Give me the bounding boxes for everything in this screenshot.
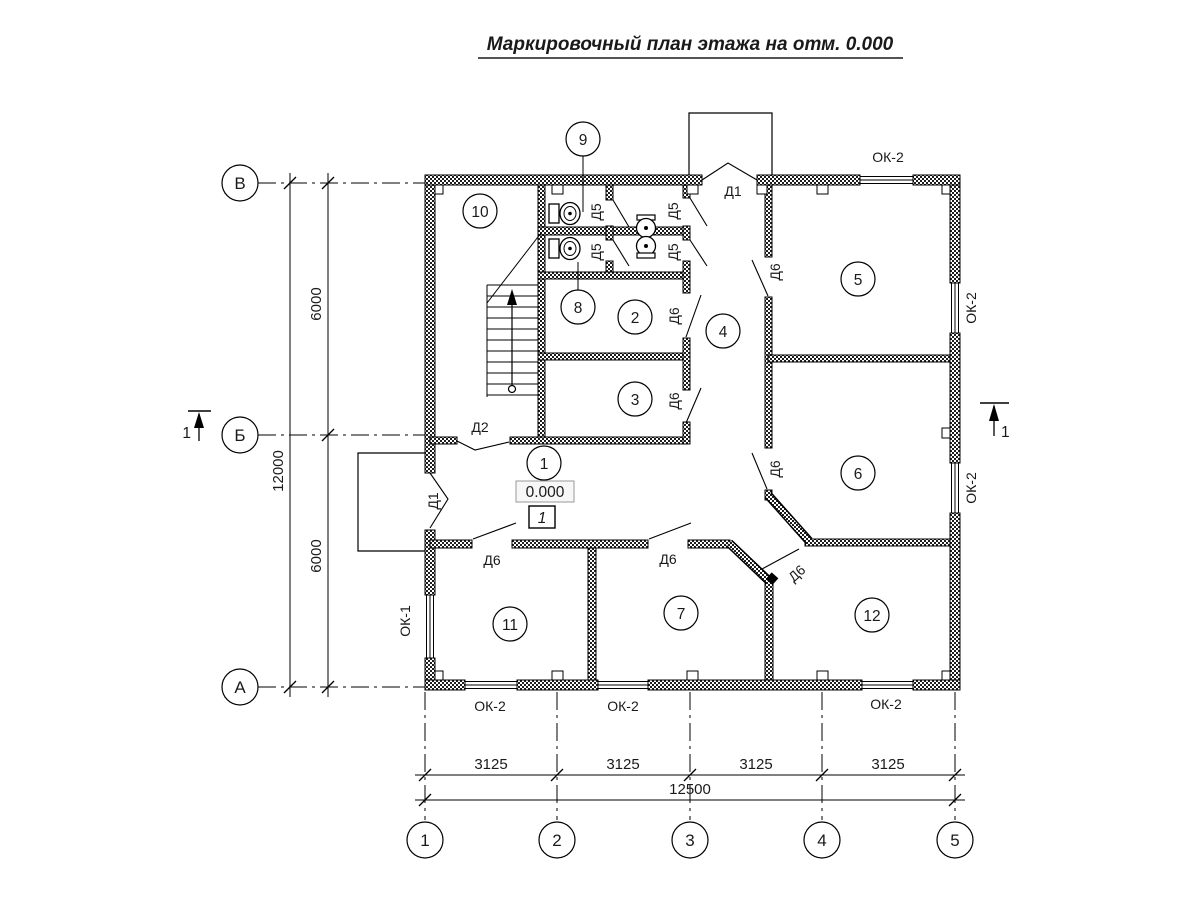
dim-row-total: 12000	[270, 450, 287, 492]
window-ok2-bottom-left	[465, 682, 517, 689]
elevation-mark: 0.000 1	[516, 481, 574, 528]
toilet-icon-lower	[549, 238, 580, 260]
stair-direction-arrow	[507, 289, 517, 393]
door-mark-d6-room7: Д6	[659, 551, 676, 567]
room-label-1: 1	[527, 446, 561, 480]
door-d5-vest-upper-leaf	[690, 198, 707, 226]
window-mark-ok2-bottom-left: ОК-2	[474, 698, 506, 714]
door-mark-d6-room3: Д6	[666, 392, 682, 409]
room-number-5: 5	[854, 272, 863, 289]
door-d5-vest-lower-leaf	[690, 240, 707, 266]
window-ok2-bottom-right	[862, 682, 913, 689]
room-number-8: 8	[574, 300, 583, 317]
col-axis-5: 5	[950, 831, 959, 850]
window-ok2-bottom-center	[598, 682, 648, 689]
left-porch-outline	[358, 453, 425, 551]
toilet-icon-upper	[549, 203, 580, 225]
door-d6-corridor-leaf	[752, 260, 768, 296]
door-mark-d6-room6: Д6	[767, 460, 783, 477]
window-mark-ok2-top: ОК-2	[872, 149, 904, 165]
room-label-11: 11	[493, 607, 527, 641]
door-d6-room7-leaf	[649, 523, 691, 539]
window-mark-ok1-left: ОК-1	[397, 605, 413, 637]
door-mark-d1-top: Д1	[724, 183, 741, 199]
room-number-2: 2	[631, 310, 640, 327]
room-number-7: 7	[677, 606, 686, 623]
drawing-title: Маркировочный план этажа на отм. 0.000	[478, 34, 903, 58]
door-mark-d5-vest-upper: Д5	[665, 202, 681, 219]
window-ok2-right-lower	[952, 463, 959, 513]
door-mark-d6-room12: Д6	[785, 561, 809, 585]
dim-col-span-2: 3125	[606, 756, 639, 773]
door-d1-top-leaf	[702, 163, 757, 180]
grid-col-bubbles: 1 2 3 4 5	[407, 822, 973, 858]
dim-row-span-2: 6000	[308, 539, 325, 572]
floor-plan-canvas: Маркировочный план этажа на отм. 0.000 3…	[0, 0, 1200, 900]
section-label-left: 1	[182, 425, 191, 442]
door-mark-d6-corridor: Д6	[767, 263, 783, 280]
row-axis-b: Б	[234, 426, 245, 445]
room-label-8: 8	[561, 290, 595, 324]
room-label-3: 3	[618, 382, 652, 416]
elevation-value: 0.000	[526, 484, 565, 501]
floor-type-mark: 1	[538, 510, 547, 527]
section-mark-left: 1	[182, 411, 211, 442]
door-d6-room6-leaf	[752, 453, 767, 489]
grid-row-bubbles: В Б А	[222, 165, 258, 705]
dim-col-span-3: 3125	[739, 756, 772, 773]
col-axis-2: 2	[552, 831, 561, 850]
floor-plan-drawing: Маркировочный план этажа на отм. 0.000 3…	[0, 0, 1200, 900]
window-ok2-right-upper	[952, 283, 959, 333]
window-mark-ok2-bottom-center: ОК-2	[607, 698, 639, 714]
door-mark-d5-vest-lower: Д5	[665, 243, 681, 260]
door-mark-d5-stall-upper: Д5	[588, 203, 604, 220]
door-mark-d1-left: Д1	[425, 492, 441, 509]
door-d6-room2-leaf	[686, 295, 701, 337]
room-number-4: 4	[719, 324, 728, 341]
staircase	[487, 233, 541, 397]
dim-row-span-1: 6000	[308, 287, 325, 320]
room-label-6: 6	[841, 456, 875, 490]
col-axis-3: 3	[685, 831, 694, 850]
door-d5-stall-upper-leaf	[613, 200, 629, 227]
door-d6-room11-leaf	[473, 523, 516, 539]
room-number-10: 10	[471, 204, 489, 221]
door-mark-d6-room2: Д6	[666, 307, 682, 324]
dim-col-total: 12500	[669, 781, 711, 798]
dim-col-span-1: 3125	[474, 756, 507, 773]
door-d6-room3-leaf	[686, 388, 701, 423]
window-mark-ok2-bottom-right: ОК-2	[870, 696, 902, 712]
room-number-6: 6	[854, 466, 863, 483]
door-mark-labels: Д1 Д1 Д2 Д5 Д5 Д5 Д5 Д6 Д6 Д6 Д6 Д6 Д6 Д…	[425, 183, 809, 585]
col-axis-4: 4	[817, 831, 826, 850]
section-mark-right: 1	[980, 403, 1010, 441]
room-number-3: 3	[631, 392, 640, 409]
sink-icon-pair	[637, 215, 656, 258]
row-axis-a: А	[234, 678, 246, 697]
room-label-10: 10	[463, 194, 497, 228]
stair-break-line	[487, 233, 541, 303]
section-label-right: 1	[1001, 424, 1010, 441]
door-mark-d6-room11: Д6	[483, 552, 500, 568]
room-label-12: 12	[855, 598, 889, 632]
dim-col-span-4: 3125	[871, 756, 904, 773]
door-mark-d5-stall-lower: Д5	[588, 243, 604, 260]
row-axis-v: В	[234, 174, 245, 193]
room-label-2: 2	[618, 300, 652, 334]
window-mark-ok2-right-lower: ОК-2	[963, 472, 979, 504]
door-mark-d2: Д2	[471, 419, 488, 435]
room-number-11: 11	[502, 617, 518, 634]
room-number-9: 9	[579, 132, 588, 149]
window-mark-ok2-right-upper: ОК-2	[963, 292, 979, 324]
room-label-4: 4	[706, 314, 740, 348]
room-label-5: 5	[841, 262, 875, 296]
window-ok1-left	[427, 595, 434, 658]
room-number-12: 12	[863, 608, 880, 625]
room-label-7: 7	[664, 596, 698, 630]
window-ok2-top	[860, 177, 913, 184]
page-title: Маркировочный план этажа на отм. 0.000	[487, 34, 894, 55]
room-label-9: 9	[566, 122, 600, 156]
col-axis-1: 1	[420, 831, 429, 850]
room-number-1: 1	[540, 456, 549, 473]
top-porch-outline	[689, 113, 772, 175]
door-d5-stall-lower-leaf	[613, 240, 629, 266]
door-d2-leaf	[457, 441, 509, 450]
